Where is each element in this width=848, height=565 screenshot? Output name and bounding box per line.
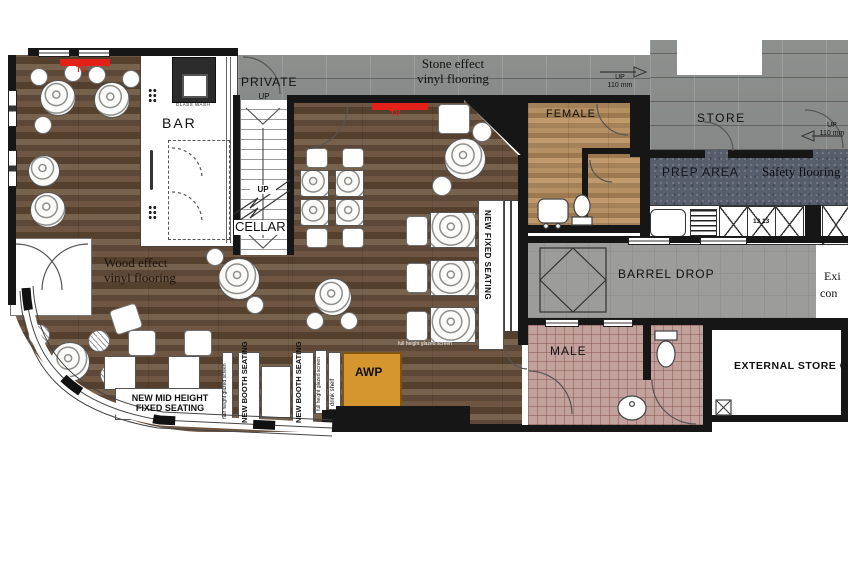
booth-table — [430, 260, 476, 296]
square-table — [300, 199, 329, 226]
window — [8, 150, 17, 187]
wall — [330, 424, 522, 432]
private-up-label: UP — [252, 92, 276, 101]
stool — [472, 122, 492, 142]
stone-flooring-note: Stone effect vinyl flooring — [388, 57, 518, 87]
seat — [128, 330, 156, 356]
seat — [306, 228, 328, 248]
wall — [712, 322, 848, 330]
barrel-drop-label: BARREL DROP — [618, 268, 715, 282]
beer-tap-icon — [148, 88, 157, 104]
stool — [246, 296, 264, 314]
seat — [406, 216, 428, 246]
awp-machine — [342, 352, 402, 412]
male-label: MALE — [550, 345, 587, 359]
wc-partition — [582, 148, 588, 233]
entrance-lobby — [10, 238, 92, 316]
drink-shelf-label: drink shelf — [330, 356, 337, 406]
beer-tap-icon — [148, 205, 157, 221]
stool — [30, 68, 48, 86]
booth-seating-label: NEW BOOTH SEATING — [240, 355, 249, 423]
stool — [34, 116, 52, 134]
stairs-up-label: UP — [250, 185, 276, 194]
wall — [322, 410, 336, 424]
stool — [122, 70, 140, 88]
unit-code-label: 13 13 — [753, 218, 769, 225]
window — [603, 319, 633, 327]
store-label: STORE — [697, 112, 746, 126]
cellar-label: CELLAR — [234, 220, 287, 235]
window — [38, 49, 70, 57]
seat — [184, 330, 212, 356]
stool — [432, 176, 452, 196]
stool — [340, 312, 358, 330]
wall — [518, 425, 712, 432]
mid-height-table — [104, 356, 136, 390]
safety-flooring-note: Safety flooring — [762, 165, 840, 180]
round-table — [28, 155, 60, 187]
bar-handle — [150, 150, 153, 190]
round-table — [30, 192, 66, 228]
booth-table — [430, 307, 476, 343]
tv-label: TV — [390, 109, 400, 118]
stool — [306, 312, 324, 330]
wc-partition — [643, 325, 651, 380]
round-table — [50, 342, 90, 382]
full-height-screen-label: full height glazed screen — [398, 342, 452, 348]
seat — [406, 263, 428, 293]
mid-height-table — [168, 356, 200, 390]
up-110-label: UP 110 mm — [812, 122, 848, 138]
round-table — [40, 80, 76, 116]
booth-seating-label: NEW BOOTH SEATING — [294, 355, 303, 423]
half-height-screen-label: half height glazed screen — [223, 353, 229, 419]
wall — [650, 150, 705, 158]
lounge-seat — [438, 104, 470, 134]
wall — [712, 415, 848, 422]
window — [78, 49, 110, 57]
round-table — [314, 278, 352, 316]
full-height-screen-label: full height glazed screen — [317, 351, 323, 411]
external-store-floor — [712, 330, 848, 420]
round-table — [94, 82, 130, 118]
tv-label: TV — [76, 65, 86, 74]
wall — [140, 48, 238, 56]
stool — [88, 66, 106, 84]
up-110-label: UP 110 mm — [600, 74, 640, 90]
mid-height-seating-label: NEW MID HEIGHT FIXED SEATING — [115, 393, 225, 414]
wall — [630, 95, 648, 157]
bar-label: BAR — [162, 115, 197, 131]
wood-flooring-note: Wood effect vinyl flooring — [104, 256, 176, 286]
square-table — [335, 199, 364, 226]
square-table — [300, 170, 329, 197]
wall — [522, 236, 848, 243]
existing-note-line1: Exi — [824, 270, 841, 284]
undercounter-cabinets — [168, 140, 230, 240]
seat — [342, 148, 364, 168]
floor-plan: Stone effect vinyl flooring Wood effect … — [0, 0, 848, 565]
radiator — [504, 200, 519, 332]
glass-wash-label: GLASS WASH — [168, 102, 218, 107]
striped-stool — [28, 324, 50, 346]
prep-area-label: PREP AREA — [662, 166, 739, 180]
seat — [342, 228, 364, 248]
fixed-seating-label: NEW FIXED SEATING — [483, 210, 492, 340]
window — [8, 90, 17, 127]
window — [700, 237, 747, 245]
seat — [306, 148, 328, 168]
awp-label: AWP — [355, 366, 382, 380]
male-wc-floor — [528, 325, 710, 425]
wall — [292, 95, 464, 103]
stool — [206, 248, 224, 266]
booth-table — [261, 366, 291, 418]
existing-note-line2: con — [820, 287, 837, 301]
glass-wash-inner — [182, 74, 208, 98]
round-table — [218, 258, 260, 300]
window — [628, 237, 670, 245]
external-store-label: EXTERNAL STORE OI — [734, 360, 848, 372]
wall — [703, 322, 712, 432]
female-label: FEMALE — [546, 108, 596, 121]
wall — [728, 150, 813, 158]
prep-sink-unit — [650, 209, 686, 237]
fixed-bench-wall — [336, 406, 470, 424]
booth-table — [430, 212, 476, 248]
roof-notch — [677, 40, 762, 75]
private-label: PRIVATE — [241, 76, 298, 90]
square-table — [335, 170, 364, 197]
striped-stool — [88, 330, 110, 352]
wall — [518, 155, 528, 345]
seat — [406, 311, 428, 341]
wall — [287, 95, 294, 255]
window — [545, 319, 579, 327]
round-table — [444, 138, 486, 180]
